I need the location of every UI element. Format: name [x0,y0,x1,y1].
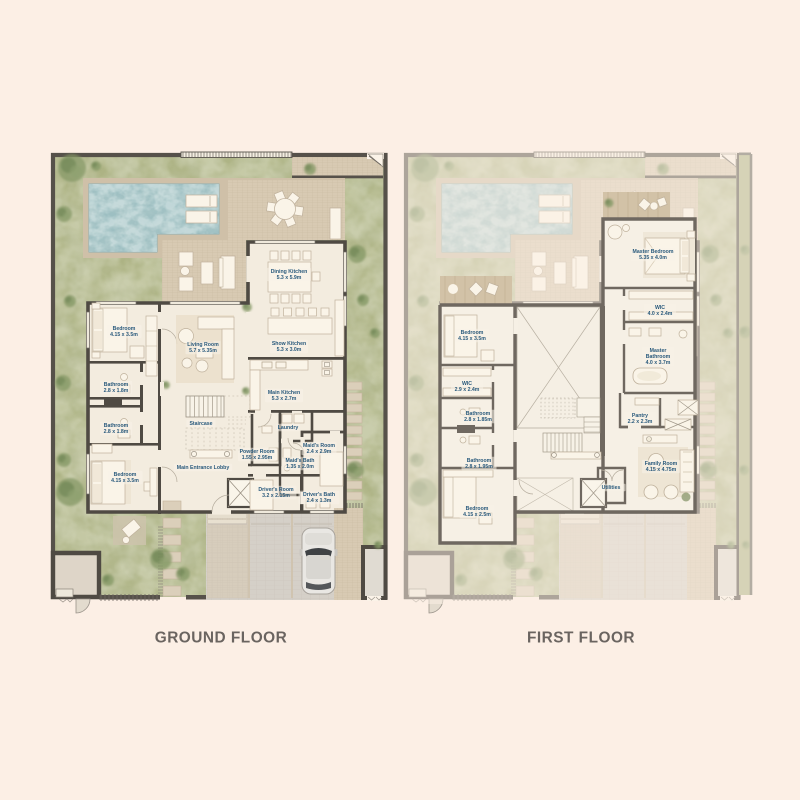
svg-text:5.3 x 5.9m: 5.3 x 5.9m [277,275,302,281]
svg-text:GROUND FLOOR: GROUND FLOOR [155,630,288,647]
svg-text:2.4 x 2.9m: 2.4 x 2.9m [307,449,332,455]
svg-text:Utilities: Utilities [602,485,621,491]
svg-text:2.8 x 1.85m: 2.8 x 1.85m [464,417,492,423]
svg-text:1.35 x 2.0m: 1.35 x 2.0m [286,464,314,470]
svg-text:5.3 x 3.0m: 5.3 x 3.0m [277,347,302,353]
svg-text:2.2 x 2.3m: 2.2 x 2.3m [628,419,653,425]
svg-text:5.35 x 4.0m: 5.35 x 4.0m [639,255,667,261]
svg-text:5.7 x 5.35m: 5.7 x 5.35m [189,348,217,354]
svg-text:4.15 x 3.5m: 4.15 x 3.5m [110,332,138,338]
svg-text:4.0 x 3.7m: 4.0 x 3.7m [646,360,671,366]
svg-text:1.55 x 2.95m: 1.55 x 2.95m [242,455,273,461]
svg-text:4.15 x 3.5m: 4.15 x 3.5m [111,478,139,484]
svg-text:Laundry: Laundry [278,425,299,431]
svg-text:4.15 x 4.75m: 4.15 x 4.75m [646,467,677,473]
svg-text:4.15 x 3.5m: 4.15 x 3.5m [458,336,486,342]
svg-text:5.3 x 2.7m: 5.3 x 2.7m [272,396,297,402]
svg-text:2.8 x 1.8m: 2.8 x 1.8m [104,388,129,394]
svg-text:2.9 x 2.4m: 2.9 x 2.4m [455,387,480,393]
svg-text:4.15 x 2.5m: 4.15 x 2.5m [463,512,491,518]
svg-text:4.0 x 2.4m: 4.0 x 2.4m [648,311,673,317]
svg-text:Staircase: Staircase [189,421,212,427]
svg-text:Main Entrance Lobby: Main Entrance Lobby [177,465,230,471]
svg-text:2.4 x 1.3m: 2.4 x 1.3m [307,498,332,504]
svg-text:2.8 x 1.8m: 2.8 x 1.8m [104,429,129,435]
svg-text:FIRST FLOOR: FIRST FLOOR [527,630,635,647]
svg-text:3.2 x 2.15m: 3.2 x 2.15m [262,493,290,499]
svg-text:2.8 x 1.95m: 2.8 x 1.95m [465,464,493,470]
